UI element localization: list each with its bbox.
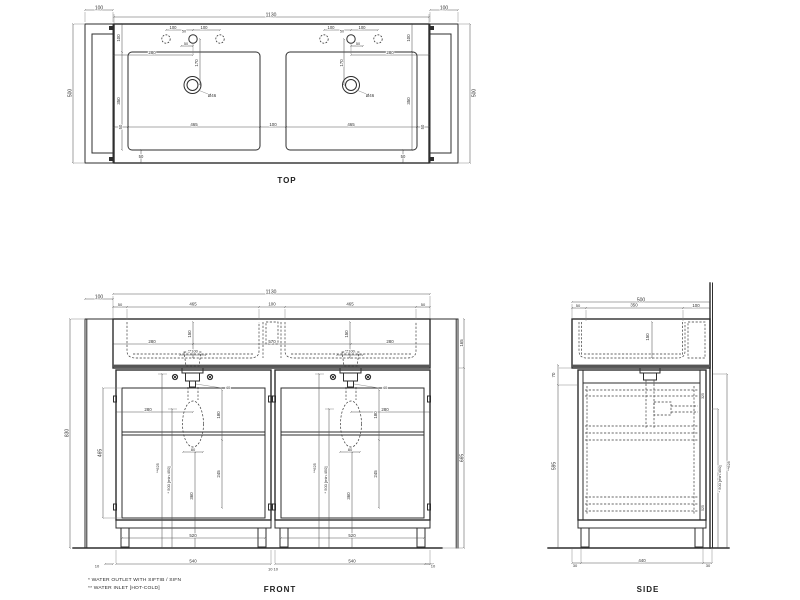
- cabinet-foot: [581, 528, 589, 547]
- dim-label: 50: [184, 42, 188, 46]
- dim-label: 465: [346, 302, 354, 307]
- dim-label: 595: [551, 462, 557, 471]
- dim-label: 280: [381, 407, 389, 412]
- vanity-technical-drawing: 1001130100500500100350100350100501005028…: [0, 0, 800, 600]
- dim-label: 465: [189, 302, 197, 307]
- dim-label: 170: [339, 59, 344, 67]
- right-siphon-hidden: [341, 401, 362, 447]
- hinge-mark: [269, 396, 272, 402]
- dim-label: **625: [726, 460, 731, 471]
- dim-label: 80: [191, 447, 196, 452]
- screw-icon: [172, 374, 177, 379]
- dim-label: 540: [189, 559, 197, 564]
- dim-label: 50: [118, 302, 123, 307]
- dim-label: 40: [383, 385, 388, 390]
- screw-icon: [207, 374, 212, 379]
- basin-hidden-side: [579, 322, 685, 358]
- left-drain-hole-inner: [187, 80, 198, 91]
- dim-label: 500: [471, 89, 477, 98]
- dim-label: 50: [420, 124, 425, 129]
- dim-label: 500: [67, 89, 73, 98]
- dim-label: 30: [573, 563, 578, 568]
- left-side-panel: [85, 24, 113, 163]
- dim-label: 360: [189, 492, 194, 500]
- dim-label: 280: [148, 50, 156, 55]
- dim-label: 540: [348, 559, 356, 564]
- top-view-title: TOP: [277, 176, 296, 185]
- top-view: 1001130100500500100350100350100501005028…: [67, 5, 477, 185]
- right-side-panel: [430, 24, 458, 163]
- dim-label: 280: [148, 339, 156, 344]
- side-view: 5005035010015070595325525* 500 [min 450]…: [548, 283, 731, 594]
- optional-faucet-hole: [162, 35, 170, 43]
- hinge-mark: [428, 396, 431, 402]
- front-geometry: [73, 319, 458, 548]
- dim-label: 325: [701, 393, 705, 399]
- top-dimensions: [73, 10, 470, 163]
- siphon-elbow-hidden: [654, 402, 671, 415]
- technical-drawing-page: 1001130100500500100350100350100501005028…: [0, 0, 800, 600]
- dim-label: 70: [551, 372, 556, 377]
- dim-label: 465: [97, 449, 103, 458]
- dim-label: 100: [359, 25, 367, 30]
- hinge-mark: [114, 396, 117, 402]
- dim-label: 50: [139, 154, 144, 159]
- right-drain-hole-inner: [346, 80, 357, 91]
- dim-label: **100: [345, 349, 356, 354]
- dim-label: 50: [576, 303, 581, 308]
- dim-label: 1130: [266, 289, 277, 295]
- dim-label: 40: [226, 385, 231, 390]
- left-faucet-hole: [189, 35, 197, 43]
- dim-label: 150: [344, 330, 349, 338]
- dim-label: **625: [155, 462, 160, 473]
- cabinet-foot: [258, 528, 266, 547]
- panel-tab: [430, 157, 434, 161]
- dim-label: 245: [373, 470, 378, 478]
- cabinet-foot: [121, 528, 129, 547]
- dim-label: 180: [373, 411, 378, 419]
- dim-label: **100: [188, 349, 199, 354]
- cabinet-foot: [417, 528, 425, 547]
- dim-label: 100: [440, 5, 449, 11]
- dim-label: 50: [340, 30, 344, 34]
- dim-label: 100: [328, 25, 336, 30]
- dim-label: 100: [95, 294, 104, 300]
- dim-label: 100: [170, 25, 178, 30]
- dim-label: Ø46: [366, 93, 375, 98]
- top-dimension-labels: 1001130100500500100350100350100501005028…: [67, 5, 477, 159]
- dim-label: 50: [356, 42, 360, 46]
- dim-label: 280: [386, 50, 394, 55]
- dim-label: 245: [216, 470, 221, 478]
- dim-label: 350: [116, 97, 121, 105]
- drain-leader: [198, 90, 208, 94]
- panel-tab: [109, 157, 113, 161]
- screw-icon: [330, 374, 335, 379]
- dim-label: 80: [348, 447, 353, 452]
- dim-label: **625: [312, 462, 317, 473]
- dim-label: 50: [401, 154, 406, 159]
- dim-label: 50: [182, 30, 186, 34]
- cabinet-foot: [280, 528, 288, 547]
- footnote-water-outlet: * WATER OUTLET WITH SIFTIB / SIFN: [88, 577, 181, 583]
- right-side-panel: [430, 319, 458, 548]
- left-drain-body: [186, 373, 200, 381]
- front-dimensions: [70, 294, 464, 564]
- front-view: 10011305046510046550830150150280570280**…: [64, 289, 465, 594]
- dim-label: 50: [421, 302, 426, 307]
- right-cabinet: [275, 370, 430, 520]
- right-side-panel-inner: [430, 34, 451, 153]
- hinge-mark: [273, 504, 276, 510]
- dim-label: 100: [692, 303, 700, 308]
- dim-label: 30: [706, 563, 711, 568]
- dim-label: 280: [144, 407, 152, 412]
- optional-faucet-hole: [320, 35, 328, 43]
- hinge-mark: [428, 504, 431, 510]
- dim-label: 100: [269, 122, 277, 127]
- left-side-panel-inner: [92, 34, 113, 153]
- dim-label: 10: [431, 564, 436, 569]
- left-siphon-hidden: [183, 401, 204, 447]
- dim-label: 165: [459, 339, 464, 347]
- dim-label: * 500 [min 450]: [166, 467, 171, 494]
- dim-label: 50: [118, 124, 123, 129]
- right-faucet-hole: [347, 35, 355, 43]
- dim-label: 570: [268, 339, 276, 344]
- countertop-slab-edge: [113, 365, 430, 368]
- front-view-title: FRONT: [264, 585, 297, 594]
- dim-label: 350: [630, 303, 638, 308]
- hinge-mark: [273, 396, 276, 402]
- countertop-side: [572, 319, 710, 368]
- countertop-slab-edge: [572, 365, 710, 368]
- dim-label: 100: [116, 34, 121, 42]
- cabinet-base-side: [578, 520, 706, 528]
- dim-label: 500: [637, 297, 646, 303]
- dim-label: 280: [386, 339, 394, 344]
- dim-label: 360: [346, 492, 351, 500]
- right-basin: [286, 52, 417, 150]
- dim-label: * 500 [min 450]: [323, 467, 328, 494]
- dim-label: 100: [95, 5, 104, 11]
- dim-label: 520: [189, 533, 197, 538]
- dim-label: 520: [348, 533, 356, 538]
- dim-label: 1130: [266, 12, 277, 18]
- footnote-water-inlet: ** WATER INLET [HOT-COLD]: [88, 585, 160, 591]
- panel-tab: [430, 26, 434, 30]
- top-geometry: [85, 24, 458, 163]
- dim-label: 665: [459, 454, 465, 463]
- dim-label: 180: [216, 411, 221, 419]
- dim-label: 525: [701, 505, 705, 511]
- optional-faucet-hole: [374, 35, 382, 43]
- cabinet-side: [578, 370, 706, 520]
- dim-label: * 500 [min 450]: [717, 466, 722, 493]
- panel-tab: [109, 26, 113, 30]
- left-side-panel: [85, 319, 113, 548]
- tap-deck-hidden: [688, 322, 705, 358]
- cabinet-foot: [695, 528, 703, 547]
- hinge-mark: [269, 504, 272, 510]
- optional-faucet-hole: [216, 35, 224, 43]
- left-drain-tail: [190, 381, 196, 387]
- dim-label: 350: [406, 97, 411, 105]
- countertop-outline: [114, 24, 429, 163]
- dim-label: 150: [187, 330, 192, 338]
- dim-label: 465: [347, 122, 355, 127]
- screw-icon: [365, 374, 370, 379]
- dim-label: 100: [406, 34, 411, 42]
- dim-label: 830: [64, 429, 70, 438]
- dim-label: 100: [201, 25, 209, 30]
- dim-label: Ø46: [208, 93, 217, 98]
- dim-label: 10: [95, 564, 100, 569]
- hinge-mark: [114, 504, 117, 510]
- drain-body: [644, 373, 657, 380]
- dim-label: 465: [190, 122, 198, 127]
- dim-label: 150: [645, 333, 650, 341]
- side-view-title: SIDE: [637, 585, 660, 594]
- dim-label: 440: [638, 558, 646, 563]
- dim-label: 100: [268, 302, 276, 307]
- dim-label: 10 10: [268, 567, 279, 572]
- left-cabinet-base: [116, 520, 271, 528]
- right-drain-body: [344, 373, 358, 381]
- right-cabinet-base: [275, 520, 430, 528]
- right-cabinet-fronts: [281, 388, 424, 518]
- footnotes: * WATER OUTLET WITH SIFTIB / SIFN ** WAT…: [88, 577, 181, 591]
- dim-label: 170: [194, 59, 199, 67]
- right-drain-tail: [348, 381, 354, 387]
